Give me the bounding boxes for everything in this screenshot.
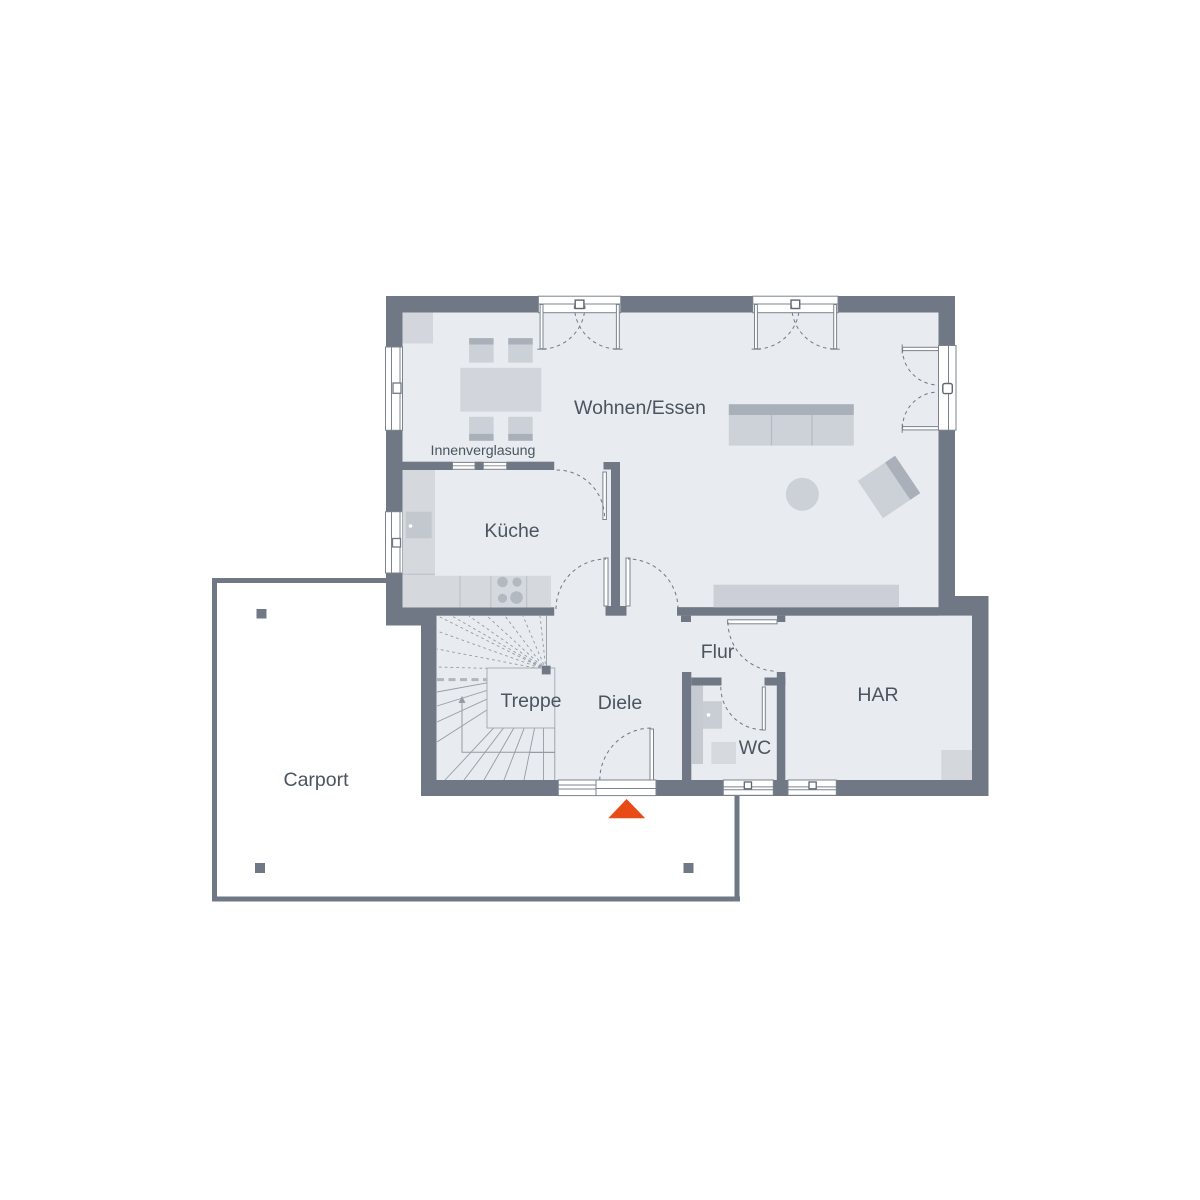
svg-text:WC: WC — [739, 737, 772, 759]
svg-text:Treppe: Treppe — [500, 690, 561, 712]
svg-text:HAR: HAR — [857, 684, 898, 706]
svg-text:Innenverglasung: Innenverglasung — [431, 443, 536, 459]
svg-text:Carport: Carport — [283, 769, 349, 791]
svg-text:Küche: Küche — [484, 520, 539, 542]
svg-text:Flur: Flur — [701, 641, 735, 663]
svg-text:Diele: Diele — [598, 692, 642, 714]
svg-text:Wohnen/Essen: Wohnen/Essen — [574, 397, 706, 419]
